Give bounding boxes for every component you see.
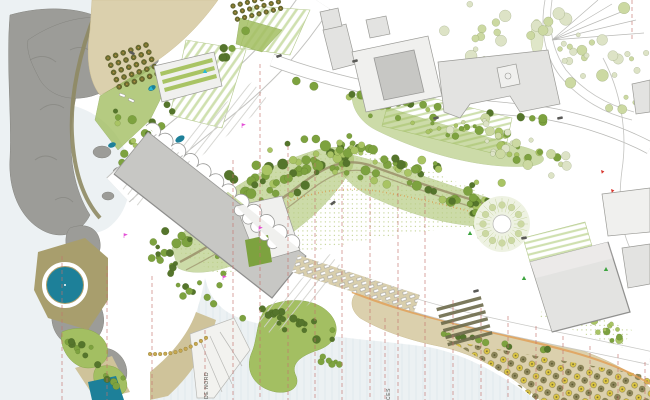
building-east-a <box>632 80 650 114</box>
building-block-d <box>366 16 390 38</box>
building-block-b <box>320 8 342 30</box>
site-plan-canvas: DE NORD CES <box>0 0 650 400</box>
site-plan: DE NORD CES <box>0 0 650 400</box>
building-block-a <box>323 24 356 70</box>
access-marker-icon <box>468 231 472 235</box>
building-east-c <box>622 244 650 288</box>
car-icon <box>473 289 479 293</box>
entrance-marker-icon <box>242 124 245 129</box>
entrance-marker-icon <box>124 234 127 239</box>
access-marker-icon <box>522 276 526 280</box>
alert-marker-icon <box>601 170 604 174</box>
access-label: CES <box>386 388 392 400</box>
building-east-b <box>602 188 650 236</box>
promenade-label: DE NORD <box>204 372 210 399</box>
entrance-marker-icon <box>223 276 226 281</box>
circular-plaza <box>474 196 530 252</box>
